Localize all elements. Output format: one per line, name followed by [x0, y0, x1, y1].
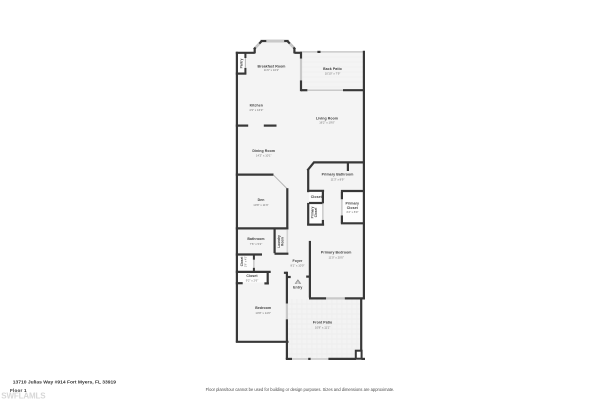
svg-text:10'8" x 11'1": 10'8" x 11'1"	[315, 325, 330, 329]
svg-text:4'4" x 8'9": 4'4" x 8'9"	[346, 210, 358, 214]
svg-text:Primary: Primary	[345, 202, 359, 206]
svg-text:Foyer: Foyer	[293, 259, 303, 263]
svg-text:SWFLAMLS: SWFLAMLS	[1, 392, 46, 400]
svg-text:Primary Bathroom: Primary Bathroom	[322, 173, 354, 177]
svg-text:Floor plans/tour cannot be use: Floor plans/tour cannot be used for buil…	[206, 387, 395, 392]
svg-text:14'2" x 10'1": 14'2" x 10'1"	[256, 154, 272, 158]
svg-text:2'9" x 4'5": 2'9" x 4'5"	[243, 256, 247, 267]
svg-text:10'8" x 14'0": 10'8" x 14'0"	[255, 311, 271, 315]
svg-text:Dining Room: Dining Room	[252, 149, 275, 153]
svg-text:Closet: Closet	[311, 195, 323, 199]
svg-text:Den: Den	[258, 198, 265, 202]
svg-text:9'2" x 2'6": 9'2" x 2'6"	[246, 278, 258, 282]
svg-text:Pantry: Pantry	[240, 58, 244, 68]
svg-text:Front Patio: Front Patio	[313, 321, 332, 325]
svg-text:13710 Julias Way #914 Fort Mye: 13710 Julias Way #914 Fort Myers, FL 339…	[13, 379, 116, 385]
svg-text:Bedroom: Bedroom	[255, 306, 271, 310]
svg-text:Closet: Closet	[314, 208, 318, 218]
svg-text:16'2" x 19'0": 16'2" x 19'0"	[319, 120, 335, 124]
svg-text:4'3" x 16'3": 4'3" x 16'3"	[249, 108, 263, 112]
svg-text:Closet: Closet	[240, 257, 244, 267]
svg-text:Room: Room	[281, 237, 285, 246]
svg-text:8'1" x 10'0": 8'1" x 10'0"	[290, 264, 304, 268]
svg-text:Bathroom: Bathroom	[247, 237, 264, 241]
svg-text:10'8" x 11'6": 10'8" x 11'6"	[253, 203, 268, 207]
svg-text:11'6" x 10'2": 11'6" x 10'2"	[264, 68, 279, 72]
svg-text:10'10" x 7'9": 10'10" x 7'9"	[325, 71, 341, 75]
svg-text:11'3" x 8'9": 11'3" x 8'9"	[331, 177, 345, 181]
svg-text:Entry: Entry	[293, 286, 302, 290]
svg-text:Primary Bedroom: Primary Bedroom	[321, 251, 352, 255]
svg-text:Closet: Closet	[246, 274, 258, 278]
svg-text:7'6" x 5'2": 7'6" x 5'2"	[250, 242, 262, 246]
svg-text:11'0" x 20'0": 11'0" x 20'0"	[329, 255, 344, 259]
